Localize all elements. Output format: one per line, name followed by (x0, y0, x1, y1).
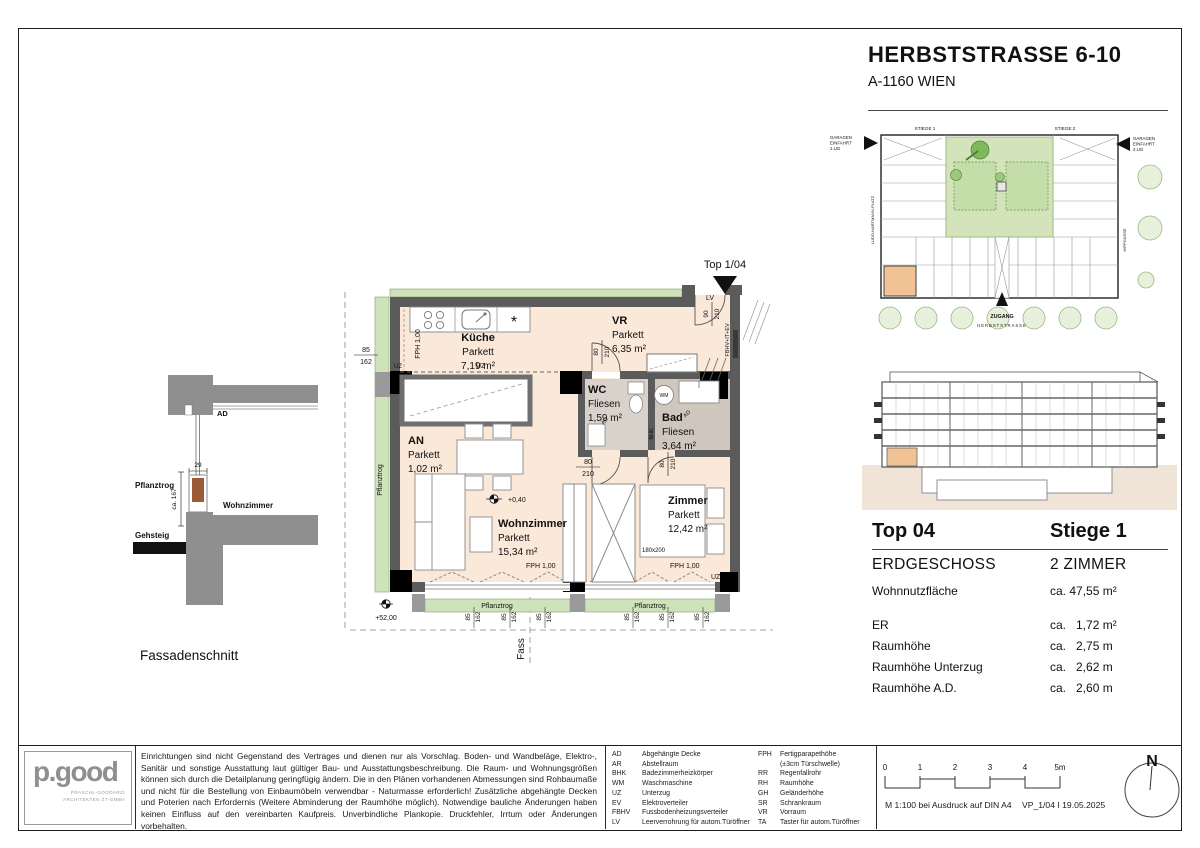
svg-text:Parkett: Parkett (462, 347, 494, 358)
facade-section: 29 ca. 167 AD Pflanztrog Wohnzimmer Gehs… (133, 366, 338, 656)
area-label: Wohnnutzfläche (872, 584, 958, 598)
svg-text:EINFAHRT: EINFAHRT (830, 141, 852, 146)
svg-text:162: 162 (360, 359, 372, 366)
svg-text:85: 85 (536, 613, 543, 621)
svg-text:EINFAHRT: EINFAHRT (1133, 142, 1155, 147)
svg-text:WM: WM (660, 393, 669, 399)
an-closet (402, 377, 530, 424)
svg-text:AD: AD (217, 409, 228, 418)
svg-text:FBHV+IT+EV: FBHV+IT+EV (725, 323, 731, 357)
svg-text:Gehsteig: Gehsteig (135, 531, 169, 540)
kitchen-counter: * (410, 307, 530, 332)
svg-text:UZ: UZ (711, 574, 721, 581)
svg-text:85: 85 (501, 613, 508, 621)
svg-text:85: 85 (624, 613, 631, 621)
svg-text:Wohnzimmer: Wohnzimmer (498, 518, 568, 530)
svg-text:+52,00: +52,00 (375, 615, 397, 622)
svg-text:Zimmer: Zimmer (668, 495, 708, 507)
svg-text:90: 90 (703, 310, 710, 318)
svg-text:Pflanztrog: Pflanztrog (634, 603, 666, 610)
svg-text:Wohnzimmer: Wohnzimmer (223, 501, 273, 510)
room-count: 2 ZIMMER (1050, 556, 1126, 574)
site-plan: STIEGE 1 STIEGE 2 GARAGEN EINFAHRT 1.UG … (828, 120, 1183, 348)
divider-wardrobe (563, 484, 635, 582)
street-left-label: LUDO-HARTMANN-PLATZ (870, 195, 875, 244)
svg-text:210: 210 (714, 308, 721, 319)
svg-text:85: 85 (362, 347, 370, 354)
svg-text:2.UG: 2.UG (1133, 147, 1144, 152)
stiege: Stiege 1 (1050, 520, 1127, 543)
side-table (470, 517, 492, 552)
svg-text:GARAGEN: GARAGEN (830, 135, 852, 140)
svg-text:162: 162 (704, 611, 711, 622)
svg-text:2: 2 (953, 763, 958, 772)
unit-label: Top 1/04 (704, 259, 746, 271)
floor-plan: * (330, 252, 775, 682)
svg-text:Küche: Küche (461, 332, 495, 344)
svg-text:Parkett: Parkett (668, 510, 700, 521)
svg-text:29: 29 (194, 462, 202, 469)
svg-text:1,02 m²: 1,02 m² (408, 464, 443, 475)
svg-text:85: 85 (694, 613, 701, 621)
svg-text:80: 80 (584, 459, 592, 466)
footer-rule (18, 745, 1181, 746)
plan-version: VP_1/04 I 19.05.2025 (1022, 800, 1105, 810)
svg-text:FPH 1,00: FPH 1,00 (415, 329, 422, 359)
svg-text:162: 162 (511, 611, 518, 622)
appliance-icon: * (511, 314, 517, 331)
svg-text:VR: VR (612, 315, 627, 327)
garage-arrow-left-icon (864, 136, 878, 150)
street-bottom-label: HERBSTSTRASSE (977, 323, 1027, 328)
unit-number: Top 04 (872, 520, 935, 543)
site-highlighted-unit (884, 266, 916, 296)
svg-text:6,35 m²: 6,35 m² (612, 344, 647, 355)
svg-text:WC: WC (588, 384, 606, 396)
stair-hatch (743, 300, 770, 344)
svg-text:180x200: 180x200 (642, 548, 666, 554)
legal-disclaimer: Einrichtungen sind nicht Gegenstand des … (141, 751, 597, 832)
svg-text:+0,40: +0,40 (508, 497, 526, 504)
north-label: N (1146, 753, 1158, 770)
svg-text:80: 80 (659, 460, 666, 468)
svg-text:210: 210 (582, 471, 594, 478)
svg-text:12,42 m²: 12,42 m² (668, 524, 708, 535)
svg-text:FPH 1,00: FPH 1,00 (526, 563, 556, 570)
svg-text:Bad: Bad (662, 412, 683, 424)
zugang-label: ZUGANG (990, 314, 1013, 320)
svg-text:162: 162 (634, 611, 641, 622)
svg-text:Pflanztrog: Pflanztrog (377, 464, 384, 496)
svg-text:0: 0 (883, 763, 888, 772)
plan-sheet: HERBSTSTRASSE 6-10 A-1160 WIEN (0, 0, 1200, 848)
header-rule (868, 110, 1168, 111)
area-value: ca. 47,55 m² (1050, 584, 1117, 598)
svg-text:BHK: BHK (649, 428, 655, 440)
street-right-label: HIPPGASSE (1122, 228, 1127, 251)
svg-text:5m: 5m (1054, 763, 1065, 772)
scale-note: M 1:100 bei Ausdruck auf DIN A4 (885, 800, 1012, 810)
svg-text:UZ: UZ (394, 364, 402, 370)
info-rule (872, 549, 1168, 550)
svg-text:162: 162 (475, 611, 482, 622)
ground-level-marker-icon (379, 600, 393, 608)
north-arrow: N (1122, 750, 1184, 824)
svg-text:85: 85 (465, 613, 472, 621)
svg-text:210: 210 (604, 346, 611, 357)
building-section (862, 368, 1177, 518)
project-address: A-1160 WIEN (868, 74, 956, 90)
svg-text:Pflanztrog: Pflanztrog (481, 603, 513, 610)
project-title: HERBSTSTRASSE 6-10 (868, 42, 1122, 68)
svg-text:1.UG: 1.UG (830, 146, 841, 151)
svg-text:210: 210 (670, 458, 677, 469)
facade-caption: Fassadenschnitt (140, 648, 238, 663)
architect-logo: p.good PRASCHL-GOODARZI ARCHITEKTEN ZT-G… (24, 751, 132, 825)
svg-text:ca. 167: ca. 167 (171, 488, 178, 510)
svg-text:UZ: UZ (476, 363, 486, 370)
svg-text:AN: AN (408, 435, 424, 447)
svg-text:1: 1 (918, 763, 923, 772)
svg-text:80: 80 (593, 348, 600, 356)
scale-bar: 0 1 2 3 4 5m (880, 758, 1080, 794)
svg-text:Parkett: Parkett (498, 533, 530, 544)
abbreviation-legend-right: FPHFertigparapethöhe (±3cm Türschwelle) … (758, 750, 873, 828)
svg-text:Parkett: Parkett (408, 450, 440, 461)
svg-text:4: 4 (1023, 763, 1028, 772)
facade-planter (189, 475, 207, 512)
sink-icon (462, 310, 490, 329)
svg-text:85: 85 (659, 613, 666, 621)
floor-name: ERDGESCHOSS (872, 556, 996, 574)
section-cut-label: Fass (516, 638, 527, 660)
svg-text:Fliesen: Fliesen (662, 427, 694, 438)
sidewalk (133, 542, 186, 554)
table (457, 440, 523, 474)
svg-text:Pflanztrog: Pflanztrog (135, 481, 174, 490)
svg-text:LV: LV (706, 295, 714, 302)
svg-text:GARAGEN: GARAGEN (1133, 136, 1155, 141)
logo-wordmark: p.good (33, 756, 117, 788)
stiege2-label: STIEGE 2 (1055, 126, 1076, 131)
svg-text:162: 162 (546, 611, 553, 622)
stiege1-label: STIEGE 1 (915, 126, 936, 131)
svg-text:3: 3 (988, 763, 993, 772)
svg-text:15,34 m²: 15,34 m² (498, 547, 538, 558)
section-highlighted-unit (887, 448, 917, 466)
svg-text:162: 162 (669, 611, 676, 622)
svg-text:3,64 m²: 3,64 m² (662, 441, 697, 452)
svg-text:Parkett: Parkett (612, 330, 644, 341)
svg-text:Fliesen: Fliesen (588, 399, 620, 410)
suspended-ceiling-lines (213, 406, 318, 409)
svg-text:FPH 1,00: FPH 1,00 (670, 563, 700, 570)
